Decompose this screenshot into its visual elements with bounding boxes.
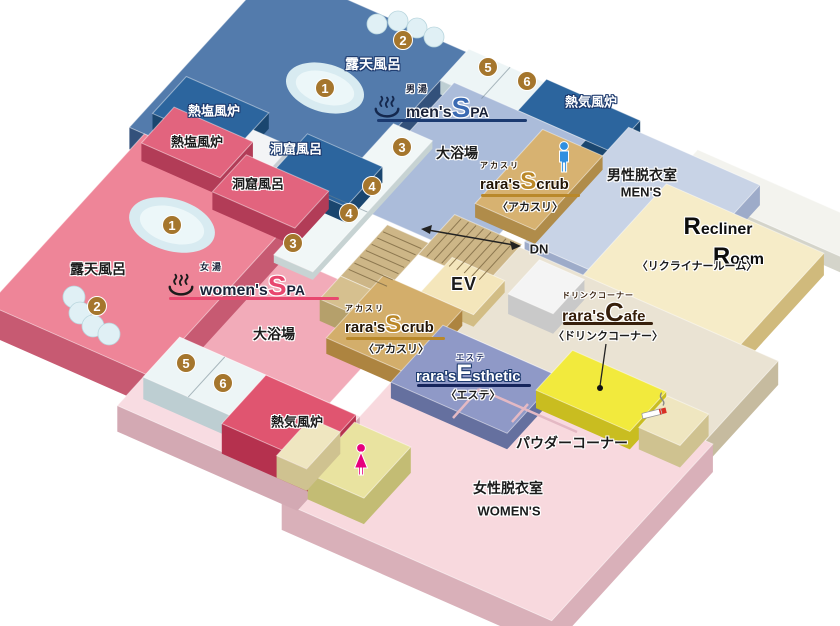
womens-bath-badge-6: 6 [213, 373, 233, 393]
scrub-big-s: S [520, 171, 536, 193]
womens-spa-logo: 女湯 women's S PA [166, 260, 305, 298]
esthetic-sub-label: 〈エステ〉 [446, 391, 501, 402]
mens-dressing-room-label: 男性脱衣室 [607, 168, 677, 182]
mens-bath-badge-4: 4 [362, 176, 382, 196]
mens-dressing-room-en-label: MEN'S [621, 186, 662, 199]
womens-spa-tag: 女湯 [200, 260, 224, 273]
mens-scrub-logo: アカスリ rara's S crub [480, 160, 569, 193]
mens-bath-badge-3: 3 [392, 137, 412, 157]
hot-spring-icon [166, 272, 196, 298]
mens-main-bath-label: 大浴場 [436, 146, 478, 160]
mens-bath-badge-5: 5 [478, 57, 498, 77]
esthetic-underline [417, 384, 531, 387]
mens-hot-air-bath-label: 熱気風炉 [565, 96, 617, 109]
mens-spa-underline [377, 119, 527, 122]
mens-spa-big-s: S [452, 95, 471, 120]
hot-spring-icon [372, 94, 402, 120]
esthetic-suffix: sthetic [472, 370, 520, 384]
mens-spa-tag: 男湯 [406, 82, 430, 95]
scrub-suffix: crub [401, 321, 434, 335]
elevator-label: EV [451, 275, 477, 293]
mens-cave-bath-label: 洞窟風呂 [270, 143, 322, 156]
womens-bath-badge-2: 2 [87, 296, 107, 316]
esthetic-logo: エステ rara's E sthetic [416, 352, 521, 385]
esthetic-big-e: E [456, 363, 472, 385]
mens-bath-badge-1: 1 [315, 78, 335, 98]
cafe-logo: ドリンクコーナー rara's C afe [562, 290, 645, 324]
mens-bath-badge-6: 6 [517, 71, 537, 91]
esthetic-prefix: rara's [416, 370, 456, 384]
down-label: DN [530, 243, 549, 256]
womens-scrub-underline [346, 337, 445, 340]
womens-scrub-logo: アカスリ rara's S crub [345, 303, 434, 336]
womens-bath-badge-3: 3 [283, 233, 303, 253]
mens-salt-bath-label: 熱塩風炉 [188, 105, 240, 118]
womens-bath-badge-5: 5 [176, 353, 196, 373]
womens-spa-big-s: S [268, 273, 287, 298]
scrub-tag: アカスリ [480, 160, 520, 171]
womens-spa-underline [169, 297, 339, 300]
scrub-prefix: rara's [345, 321, 385, 335]
cafe-sub-label: 〈ドリンクコーナー〉 [553, 332, 663, 343]
cafe-big-c: C [605, 301, 624, 324]
mens-open-air-bath-label: 露天風呂 [345, 57, 401, 71]
mens-scrub-sub-label: 〈アカスリ〉 [497, 203, 563, 214]
label-layer: 男湯 men's S PA 女湯 women's S [0, 0, 840, 626]
womens-scrub-sub-label: 〈アカスリ〉 [363, 345, 429, 356]
scrub-prefix: rara's [480, 178, 520, 192]
womens-cave-bath-label: 洞窟風呂 [232, 178, 284, 191]
powder-corner-label: パウダーコーナー [516, 436, 628, 450]
womens-salt-bath-label: 熱塩風炉 [171, 136, 223, 149]
womens-open-air-bath-label: 露天風呂 [70, 262, 126, 276]
mens-spa-suffix: PA [470, 106, 488, 119]
scrub-tag: アカスリ [345, 303, 385, 314]
womens-dressing-room-en-label: WOMEN'S [477, 505, 540, 518]
womens-spa-suffix: PA [287, 284, 305, 297]
mens-scrub-underline [481, 194, 580, 197]
spa-floor-map: 男湯 men's S PA 女湯 women's S [0, 0, 840, 626]
scrub-suffix: crub [536, 178, 569, 192]
mens-bath-badge-2: 2 [393, 30, 413, 50]
womens-bath-badge-1: 1 [162, 215, 182, 235]
mens-spa-logo: 男湯 men's S PA [372, 82, 489, 120]
womens-dressing-room-label: 女性脱衣室 [473, 481, 543, 495]
womens-bath-badge-4: 4 [339, 203, 359, 223]
womens-main-bath-label: 大浴場 [253, 327, 295, 341]
recliner-rest1: ecliner [701, 221, 753, 238]
recliner-sub-label: 〈リクライナールーム〉 [637, 262, 757, 273]
cafe-underline [563, 322, 653, 325]
recliner-big-r1: R [684, 213, 701, 240]
womens-hot-air-bath-label: 熱気風炉 [271, 416, 323, 429]
scrub-big-s: S [385, 314, 401, 336]
